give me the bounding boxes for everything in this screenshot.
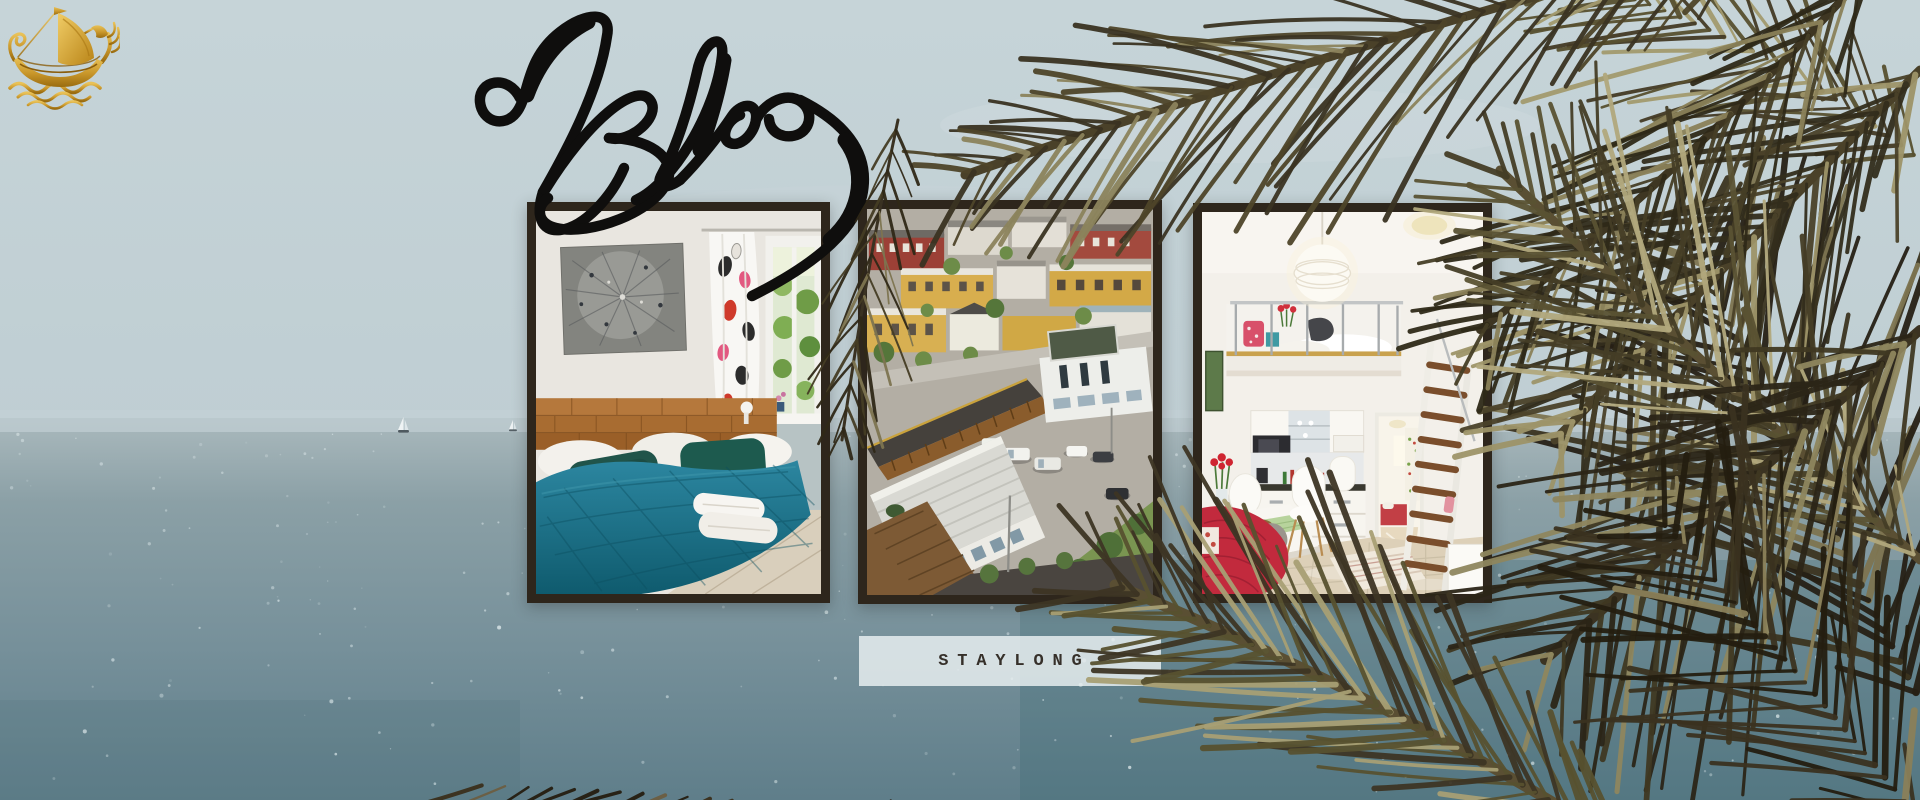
staylong-button[interactable]: STAYLONG	[859, 636, 1161, 686]
bedroom-photo	[536, 211, 821, 594]
aerial-photo	[867, 209, 1153, 595]
blog-card-loft[interactable]	[1193, 203, 1492, 603]
loft-photo	[1202, 212, 1483, 594]
hero-banner: Blog	[0, 0, 1920, 800]
blog-card-aerial[interactable]	[858, 200, 1162, 604]
blog-card-bedroom[interactable]	[527, 202, 830, 603]
viking-ship-logo[interactable]	[0, 0, 120, 112]
staylong-button-label: STAYLONG	[929, 652, 1090, 671]
